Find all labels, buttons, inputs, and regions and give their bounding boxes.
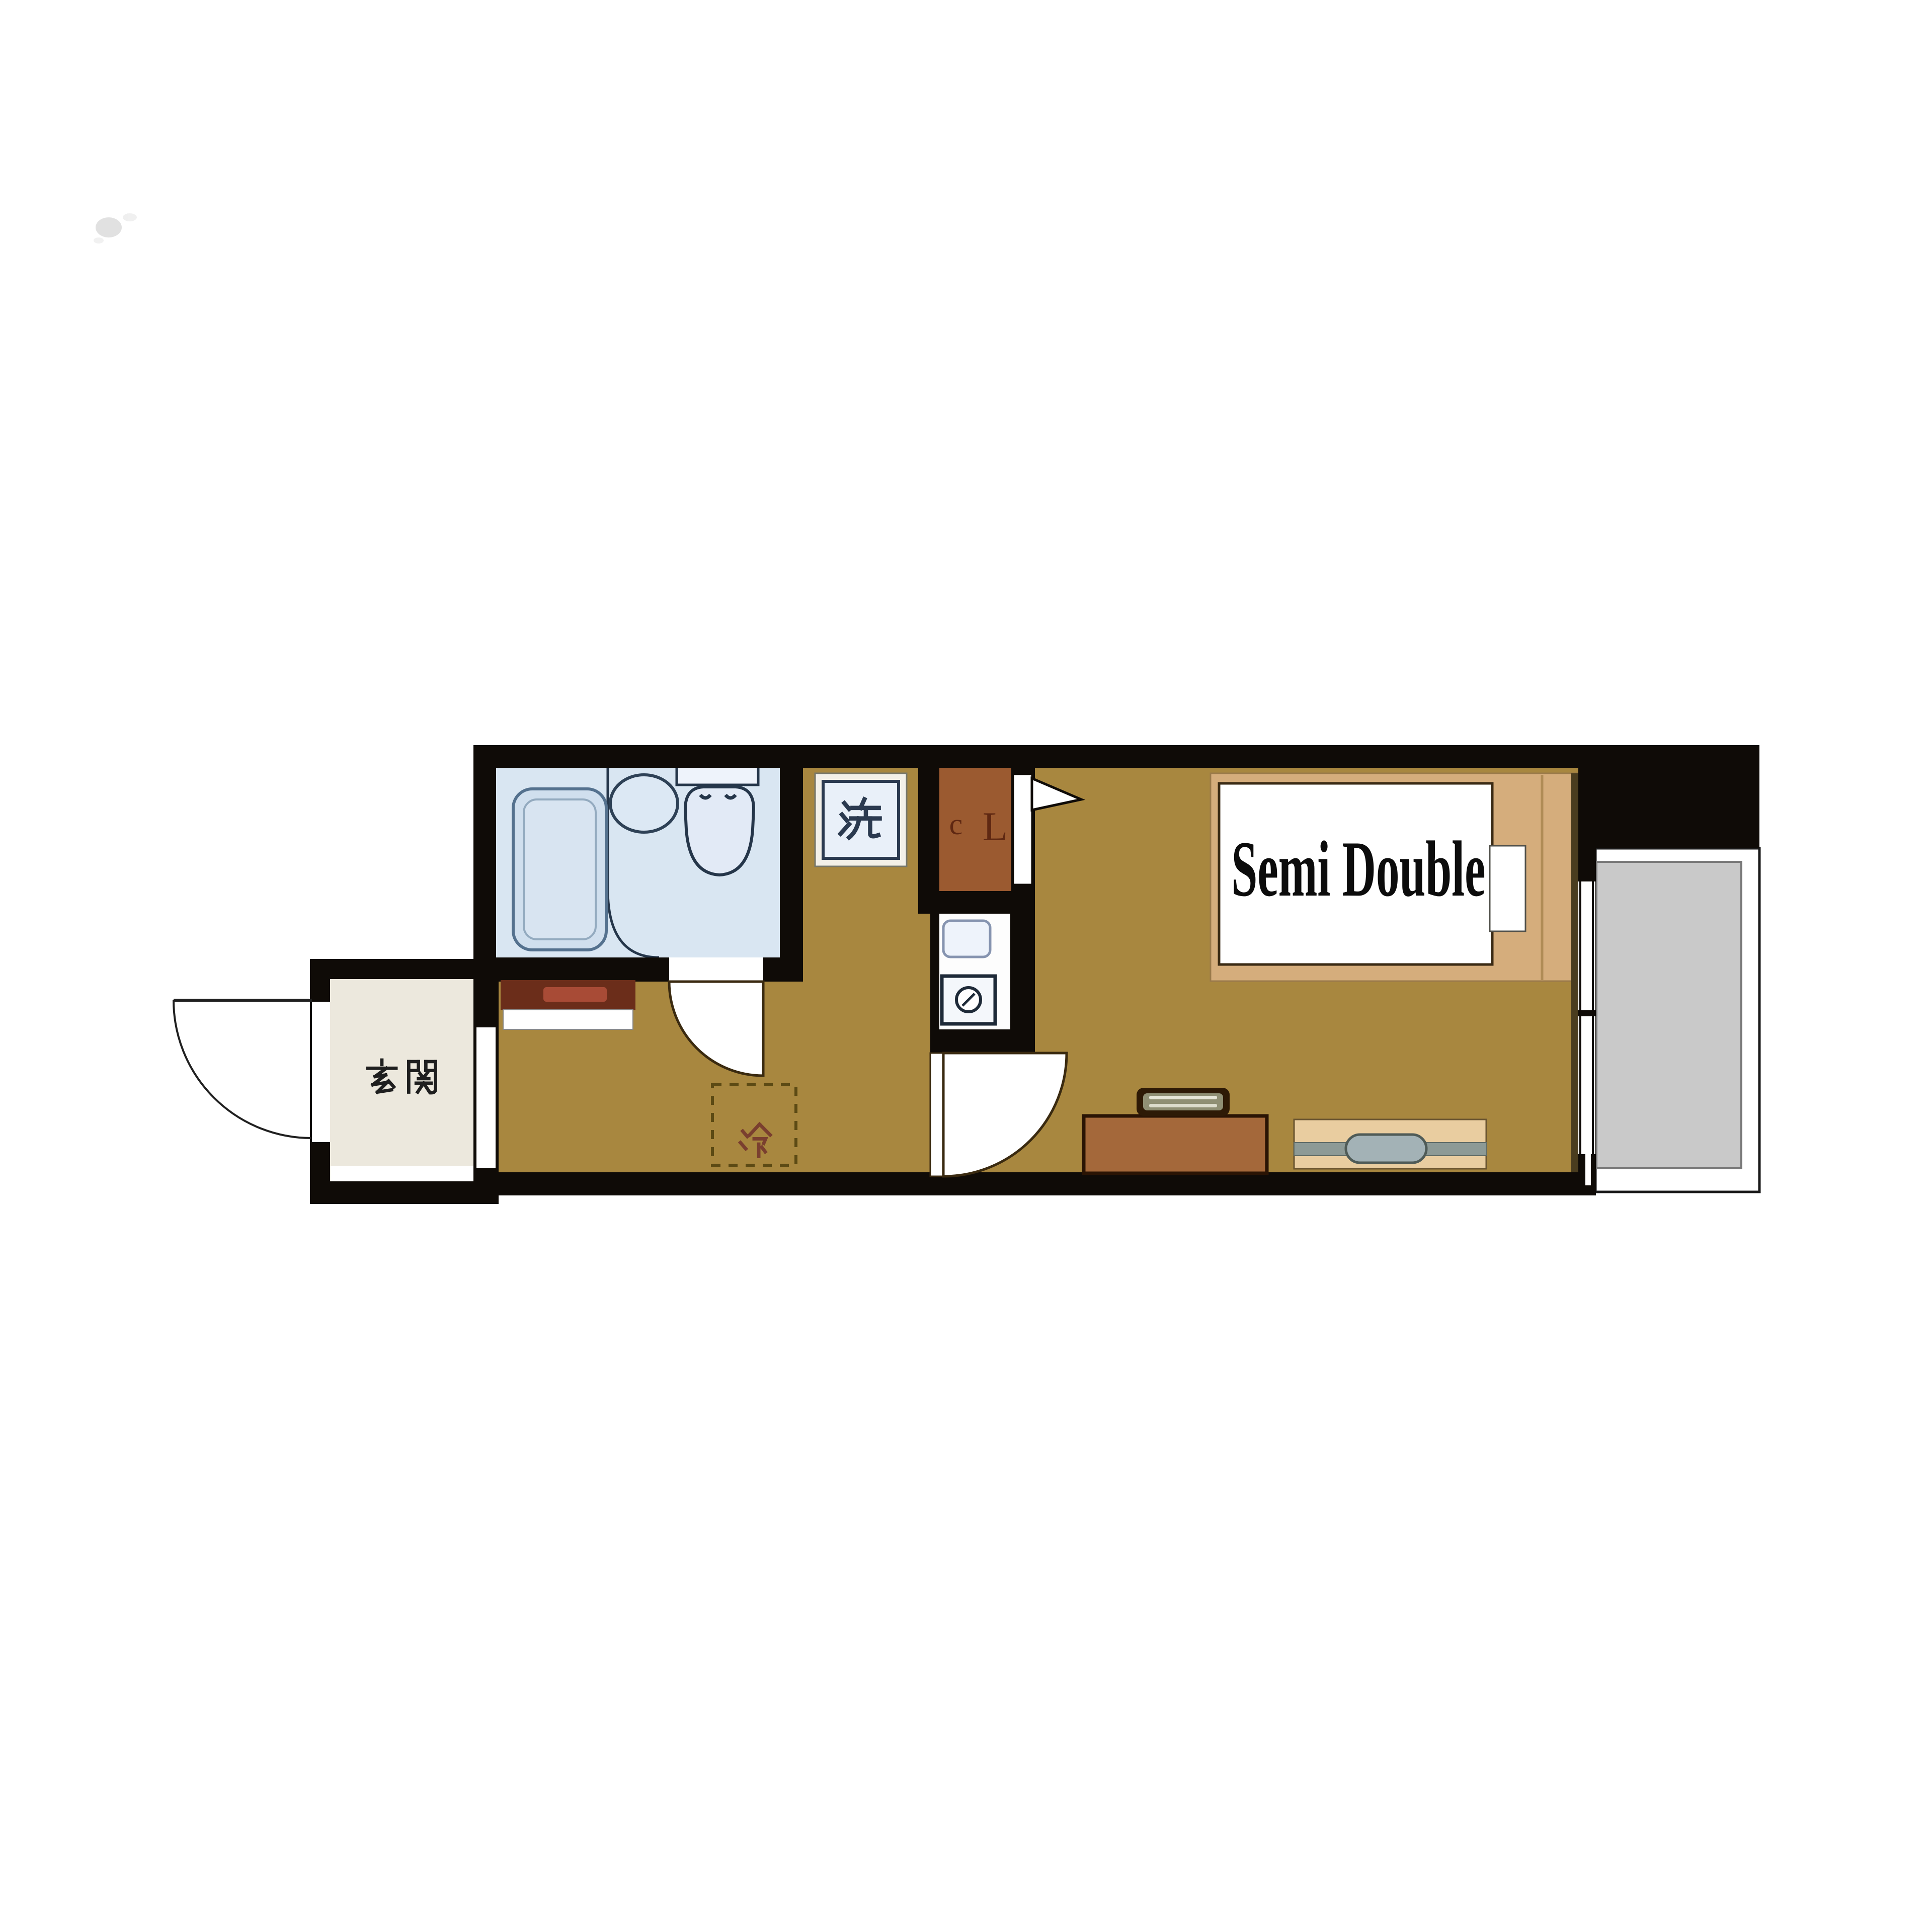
svg-text:Semi Double: Semi Double: [1232, 825, 1486, 913]
svg-text:L: L: [983, 803, 1008, 849]
svg-text:c: c: [949, 808, 963, 841]
